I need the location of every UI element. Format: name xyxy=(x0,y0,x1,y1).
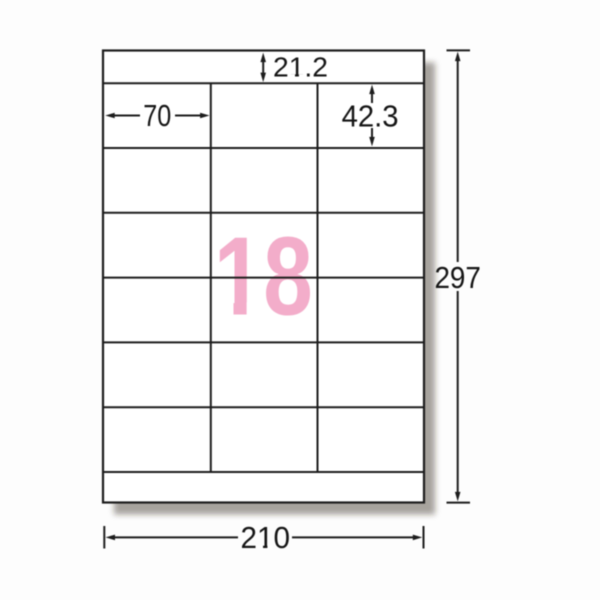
svg-text:18: 18 xyxy=(214,215,313,339)
svg-text:42.3: 42.3 xyxy=(342,99,399,134)
svg-text:297: 297 xyxy=(434,260,481,295)
svg-text:210: 210 xyxy=(241,520,291,555)
svg-text:70: 70 xyxy=(143,98,171,133)
